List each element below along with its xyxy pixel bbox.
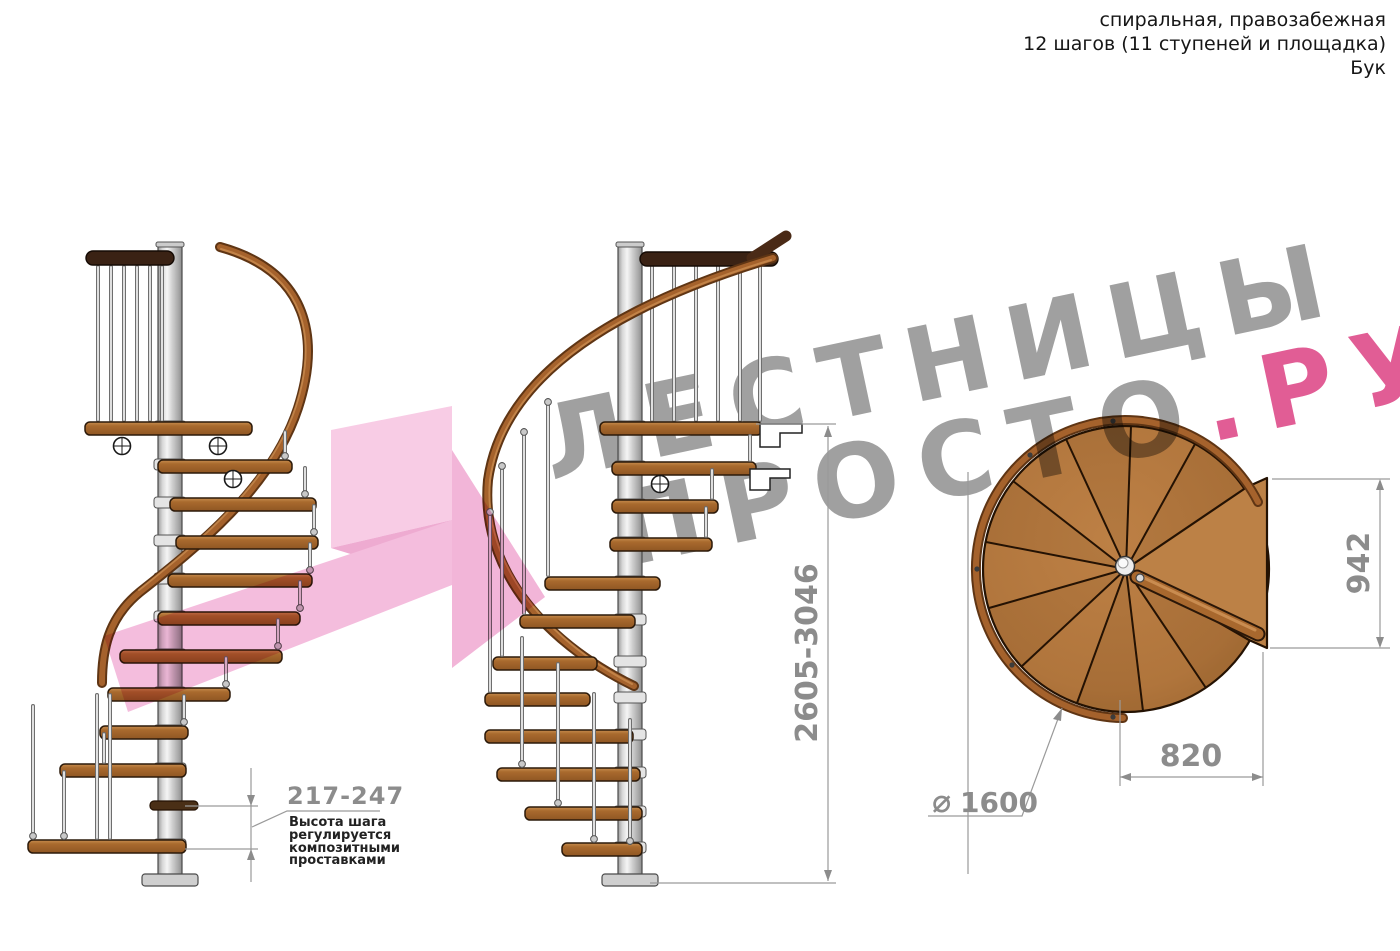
drawing-canvas: ЛЕСТНИЦЫ ПРОСТО.РУ bbox=[0, 0, 1400, 951]
title-line-type: спиральная, правозабежная bbox=[1023, 8, 1386, 32]
title-block: спиральная, правозабежная 12 шагов (11 с… bbox=[1023, 8, 1386, 80]
step-height-note: Высота шага регулируется композитными пр… bbox=[289, 817, 400, 868]
title-line-steps: 12 шагов (11 ступеней и площадка) bbox=[1023, 32, 1386, 56]
arrow-shapes bbox=[104, 406, 545, 712]
note-line-4: проставками bbox=[289, 855, 400, 868]
watermark-arrow-icon bbox=[0, 0, 1400, 951]
title-line-material: Бук bbox=[1023, 56, 1386, 80]
